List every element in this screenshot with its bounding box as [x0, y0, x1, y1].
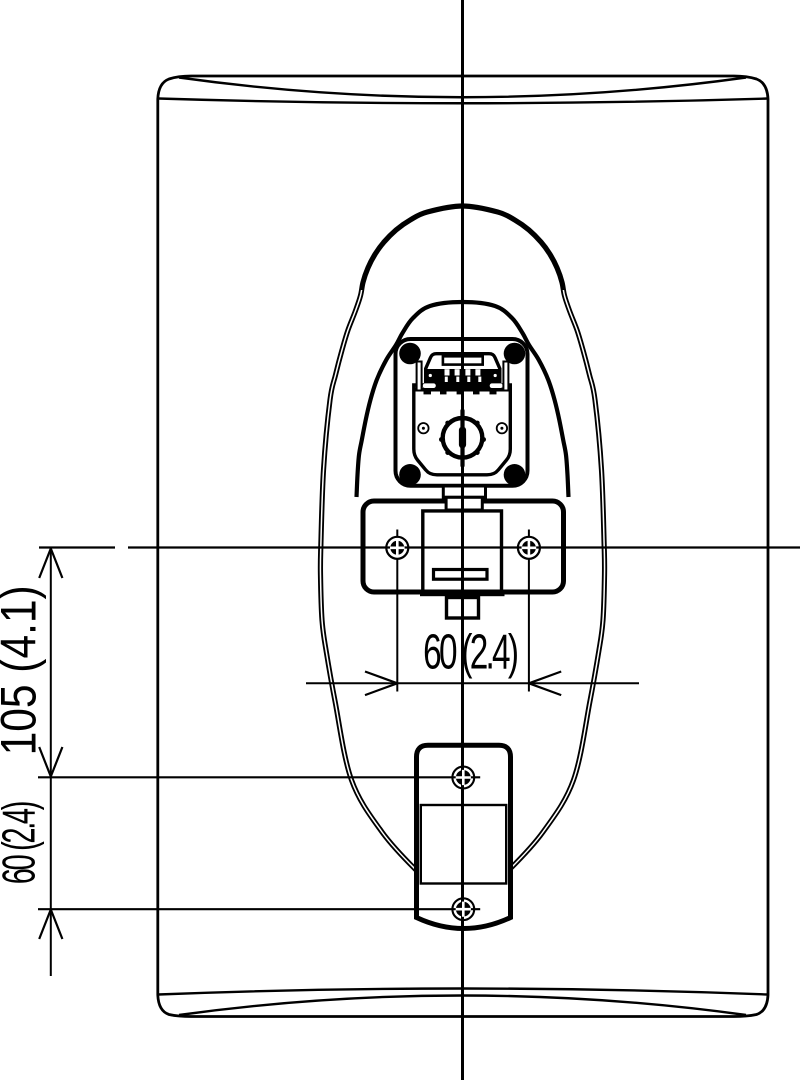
svg-text:60 (2.4): 60 (2.4): [423, 624, 517, 679]
svg-text:105 (4.1): 105 (4.1): [0, 585, 46, 755]
svg-text:60 (2.4): 60 (2.4): [0, 802, 45, 884]
